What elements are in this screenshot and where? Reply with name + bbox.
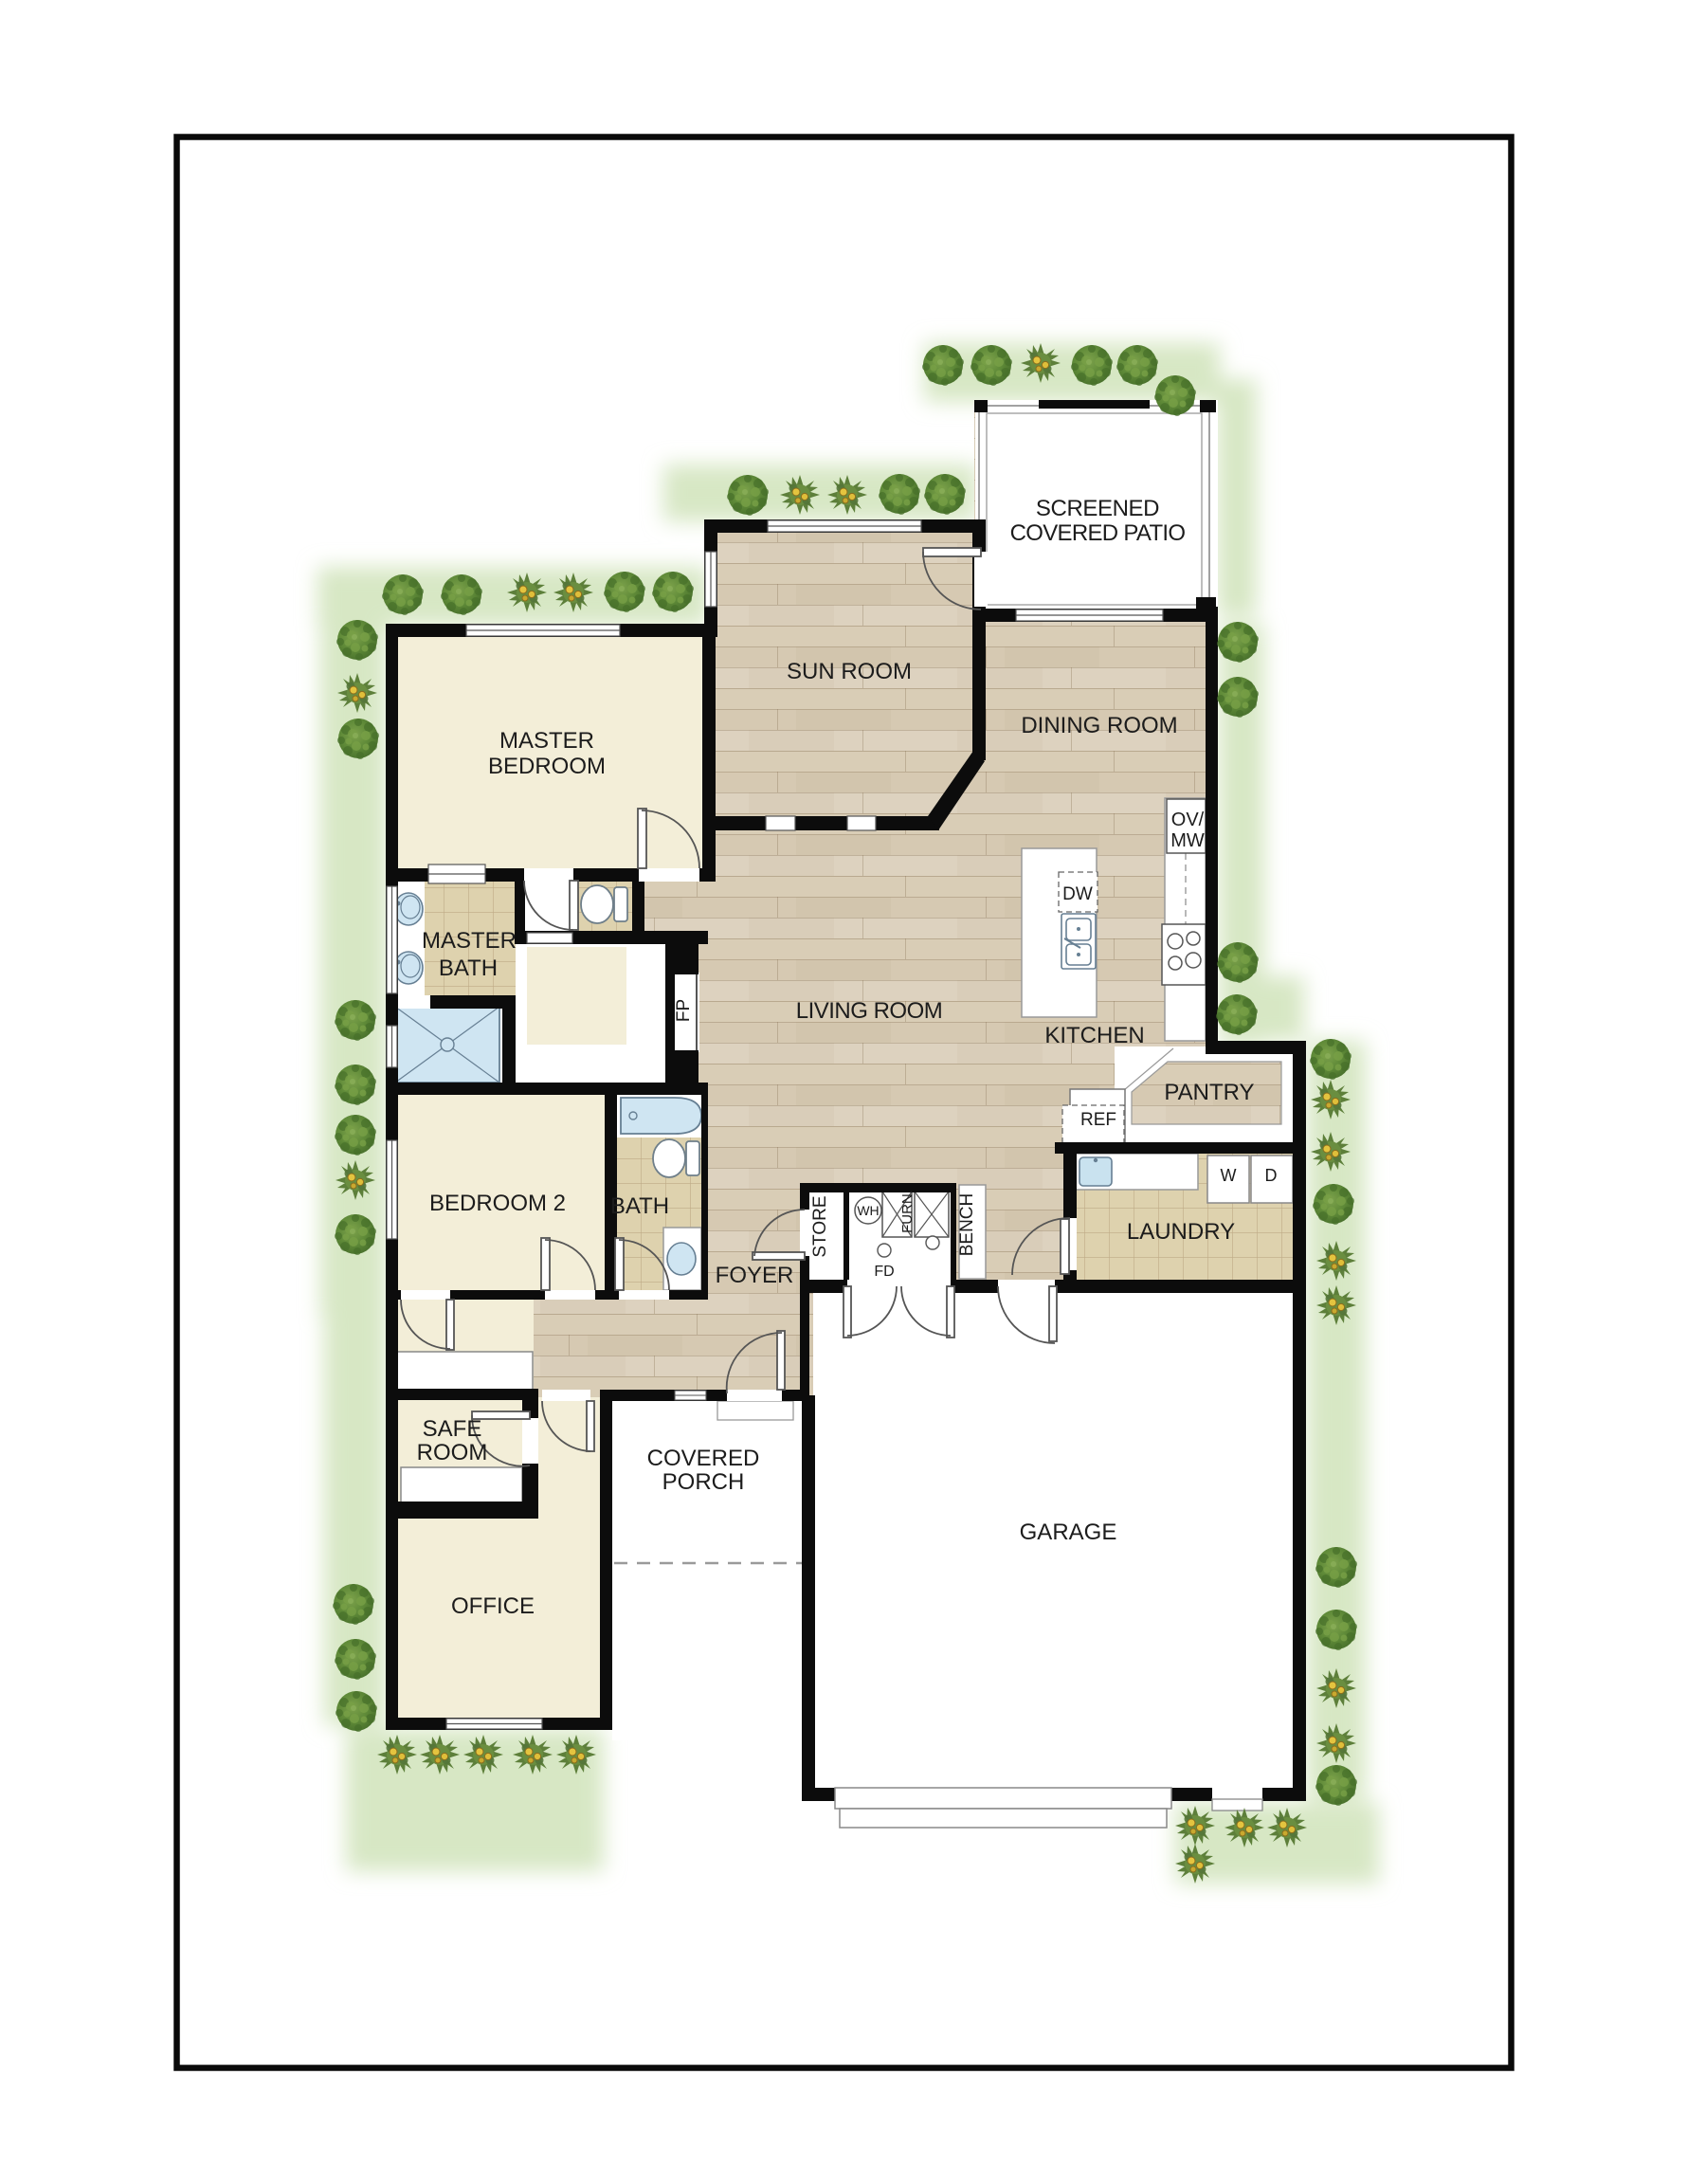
svg-text:OFFICE: OFFICE [451,1593,535,1619]
svg-text:BEDROOM: BEDROOM [488,754,606,779]
svg-text:LAUNDRY: LAUNDRY [1127,1219,1235,1245]
svg-text:KITCHEN: KITCHEN [1044,1023,1144,1048]
svg-text:COVERED: COVERED [647,1446,760,1471]
svg-text:BENCH: BENCH [957,1193,977,1257]
svg-text:FURN.: FURN. [899,1190,916,1233]
svg-text:MASTER: MASTER [499,728,594,754]
svg-text:FP: FP [674,999,694,1022]
svg-text:MASTER: MASTER [422,928,517,954]
svg-text:SUN ROOM: SUN ROOM [787,659,912,684]
svg-text:COVERED PATIO: COVERED PATIO [1010,520,1186,546]
svg-text:FD: FD [874,1264,894,1280]
svg-text:MW: MW [1170,830,1205,851]
svg-text:DW: DW [1062,884,1093,904]
svg-text:PORCH: PORCH [662,1469,745,1495]
svg-text:BATH: BATH [610,1193,669,1219]
svg-text:STORE: STORE [810,1195,830,1257]
svg-text:PANTRY: PANTRY [1164,1080,1254,1105]
svg-text:BATH: BATH [439,955,498,981]
svg-text:W: W [1221,1166,1237,1185]
svg-text:DINING ROOM: DINING ROOM [1021,713,1177,738]
svg-text:REF: REF [1080,1110,1116,1130]
svg-text:SAFE: SAFE [423,1416,482,1442]
svg-text:FOYER: FOYER [716,1263,794,1288]
svg-text:GARAGE: GARAGE [1020,1520,1117,1545]
svg-text:SCREENED: SCREENED [1036,496,1159,521]
svg-text:BEDROOM 2: BEDROOM 2 [429,1191,566,1216]
svg-text:OV/: OV/ [1171,810,1205,830]
svg-text:LIVING ROOM: LIVING ROOM [796,998,943,1024]
svg-text:WH: WH [857,1203,879,1218]
svg-text:ROOM: ROOM [417,1440,488,1465]
svg-text:D: D [1265,1166,1278,1185]
